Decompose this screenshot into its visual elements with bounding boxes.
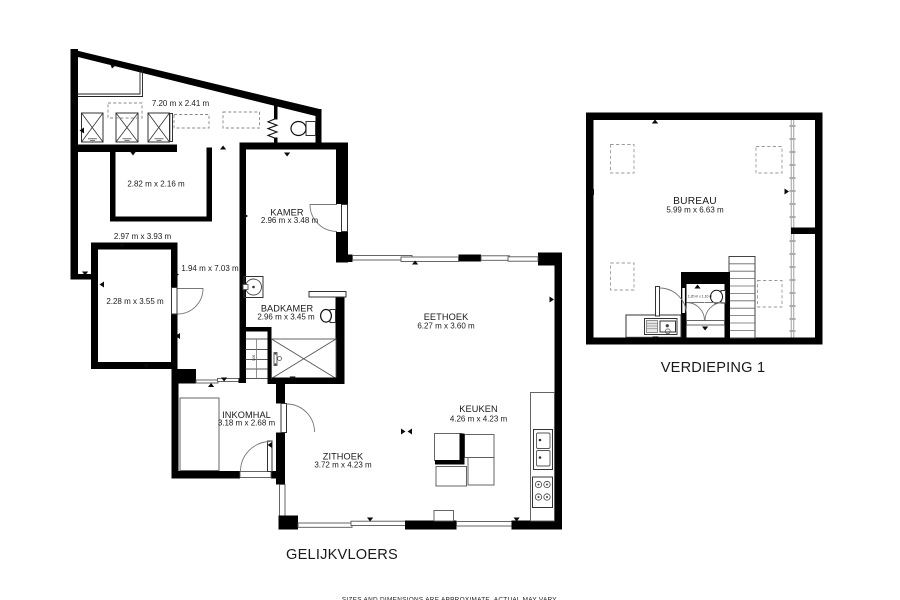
svg-text:7.20 m x 2.41 m: 7.20 m x 2.41 m <box>152 99 210 108</box>
svg-text:1.20 m x 1.10 m: 1.20 m x 1.10 m <box>688 295 712 299</box>
svg-text:3.06: 3.06 <box>252 355 256 361</box>
svg-text:KEUKEN: KEUKEN <box>459 404 497 414</box>
svg-text:2.82 m x 2.16 m: 2.82 m x 2.16 m <box>127 180 185 189</box>
svg-text:SIZES AND DIMENSIONS ARE APPRO: SIZES AND DIMENSIONS ARE APPROXIMATE. AC… <box>342 597 558 600</box>
svg-text:2.96 m x 3.48 m: 2.96 m x 3.48 m <box>261 216 319 225</box>
svg-text:2.28 m x 3.55 m: 2.28 m x 3.55 m <box>106 297 164 306</box>
svg-text:2.97 m x 3.93 m: 2.97 m x 3.93 m <box>114 232 172 241</box>
svg-text:EETHOEK: EETHOEK <box>424 312 469 322</box>
svg-text:5.99 m x 6.63 m: 5.99 m x 6.63 m <box>666 206 724 215</box>
svg-text:VERDIEPING 1: VERDIEPING 1 <box>661 360 766 376</box>
svg-text:GELIJKVLOERS: GELIJKVLOERS <box>286 547 398 563</box>
svg-text:4.26 m x 4.23 m: 4.26 m x 4.23 m <box>450 415 508 424</box>
svg-text:1.94 m x 7.03 m: 1.94 m x 7.03 m <box>181 264 239 273</box>
svg-text:6.27 m x 3.60 m: 6.27 m x 3.60 m <box>417 322 475 331</box>
svg-text:3.72 m x 4.23 m: 3.72 m x 4.23 m <box>314 461 372 470</box>
svg-text:3.18 m x 2.68 m: 3.18 m x 2.68 m <box>218 419 276 428</box>
svg-text:2.96 m x 3.45 m: 2.96 m x 3.45 m <box>257 313 315 322</box>
